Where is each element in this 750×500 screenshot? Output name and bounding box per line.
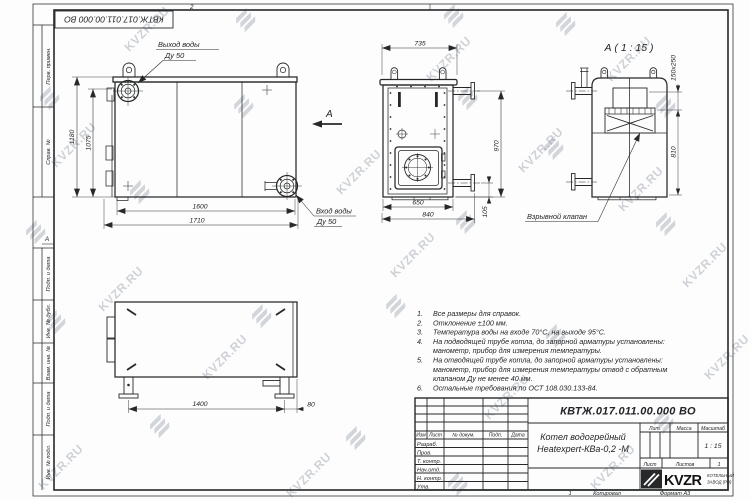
margin-label-podp1: Подп. и дата bbox=[46, 256, 52, 291]
technical-notes: 1. Все размеры для справок. 2. Отклонени… bbox=[416, 309, 667, 392]
top-view-shape bbox=[107, 339, 115, 362]
front-view-shape bbox=[123, 63, 135, 77]
top-view-shape bbox=[280, 377, 289, 394]
dim-150x250: 150x250 bbox=[671, 55, 678, 81]
side-view-shape-shape bbox=[390, 92, 392, 94]
front-view-shape bbox=[123, 85, 272, 191]
dim-1180: 1180 bbox=[69, 129, 76, 144]
front-view-shape bbox=[133, 96, 135, 98]
detail-view-a-shape bbox=[676, 86, 680, 93]
front-view-shape bbox=[277, 63, 289, 77]
dim-1600: 1600 bbox=[192, 204, 207, 211]
note-num: 3. bbox=[417, 328, 423, 337]
explosion-valve-label: Взрывной клапан bbox=[527, 212, 587, 221]
inlet-dn-label: Ду 50 bbox=[316, 217, 337, 226]
view-direction-arrow-shape bbox=[312, 120, 322, 127]
note-line: На подводящей трубе котла, до запорной а… bbox=[433, 337, 665, 346]
kvzr-logo-shape bbox=[641, 470, 662, 489]
margin-label-perv: Перв. примен. bbox=[46, 47, 52, 84]
view-direction-arrow: А bbox=[312, 109, 342, 128]
sheets-label: Листов bbox=[675, 462, 695, 468]
front-view-shape bbox=[72, 77, 115, 197]
doc-number: КВТЖ.017.011.00.000 ВО bbox=[560, 406, 696, 418]
margin-label-invdubl: Инв. № дубл. bbox=[46, 304, 52, 338]
side-view-shape-shape bbox=[390, 164, 392, 166]
lit-label: Лит. bbox=[648, 426, 661, 432]
detail-view-a-shape bbox=[613, 88, 647, 108]
sheets-value: 1 bbox=[717, 462, 720, 468]
side-view-shape-shape bbox=[438, 86, 440, 88]
side-view-shape bbox=[395, 147, 442, 189]
side-view-shape bbox=[435, 92, 438, 107]
side-view: 735 970 650 840 105 bbox=[380, 41, 505, 224]
inlet-water-label: Вход воды bbox=[316, 207, 352, 216]
zone-number-top: 2 bbox=[189, 4, 194, 11]
row-razrab: Разраб. bbox=[417, 442, 437, 448]
side-view-shape-shape bbox=[390, 176, 392, 178]
top-view-shape bbox=[119, 394, 138, 398]
col-doc: № докум. bbox=[452, 433, 474, 439]
note-line: Температура воды на входе 70°С, на выход… bbox=[433, 328, 606, 337]
front-view-shape bbox=[292, 179, 294, 181]
drawing-sheet: KVZR.RUKVZR.RUKVZR.RUKVZR.RUKVZR.RUKVZR.… bbox=[0, 0, 750, 500]
front-view-shape bbox=[133, 84, 135, 86]
note-line: На отводящей трубе котла, до запорной ар… bbox=[433, 356, 663, 365]
side-view-shape-shape bbox=[390, 152, 392, 154]
copied-label: Копировал bbox=[593, 491, 622, 497]
front-view-shape bbox=[280, 191, 282, 193]
note-num: 4. bbox=[417, 337, 423, 346]
margin-label-sprav: Справ. № bbox=[46, 139, 52, 164]
side-view-shape-shape bbox=[444, 188, 446, 190]
detail-view-a-shape bbox=[676, 189, 680, 196]
front-view-shape bbox=[292, 191, 294, 193]
front-view-shape bbox=[296, 195, 314, 216]
front-view-shape bbox=[280, 179, 282, 181]
side-view-shape bbox=[487, 197, 491, 204]
side-view-shape-shape bbox=[417, 155, 419, 157]
kvzr-logo: KVZR КОТЕЛЬНЫЙ ЗАВОД (РЭ) bbox=[641, 470, 735, 490]
top-view-shape bbox=[115, 302, 297, 377]
margin-label-invpodl: Инв. № подл. bbox=[46, 445, 52, 480]
outlet-dn-label: Ду 50 bbox=[164, 51, 185, 60]
row-tkontr: Т. контр. bbox=[417, 459, 441, 465]
sheet-label: Лист bbox=[642, 462, 656, 468]
front-view-shape bbox=[138, 61, 163, 84]
detail-view-a-shape bbox=[652, 70, 655, 73]
detail-view-a-shape bbox=[609, 108, 651, 114]
side-view-shape-shape bbox=[444, 104, 446, 106]
front-view-shape bbox=[113, 77, 297, 82]
row-nkontr: Н. контр. bbox=[417, 476, 442, 482]
side-view-shape bbox=[398, 92, 401, 107]
top-view-shape bbox=[127, 384, 130, 387]
top-stamp: КВТЖ.017.011.00.000 ВО bbox=[55, 11, 173, 28]
note-num: 5. bbox=[417, 356, 423, 365]
mass-label: Масса bbox=[676, 426, 691, 432]
side-view-shape-shape bbox=[444, 164, 446, 166]
front-view-shape bbox=[280, 67, 285, 72]
dim-840: 840 bbox=[422, 212, 434, 219]
note-line: клапаном Ду не менее 40 мм. bbox=[433, 374, 533, 383]
note-num: 2. bbox=[416, 318, 423, 327]
side-view-shape-shape bbox=[410, 86, 412, 88]
side-view-shape-shape bbox=[425, 159, 427, 161]
side-view-shape-shape bbox=[444, 116, 446, 118]
row-prov: Пров. bbox=[417, 450, 432, 456]
dim-1710: 1710 bbox=[189, 218, 204, 225]
copy-number: 1 bbox=[568, 491, 571, 497]
title-block: КВТЖ.017.011.00.000 ВО Котел водогрейный… bbox=[415, 398, 735, 497]
top-view-shape bbox=[278, 407, 284, 411]
dim-1400: 1400 bbox=[192, 401, 207, 408]
product-name-line1: Котел водогрейный bbox=[540, 432, 626, 442]
note-line: манометр, прибор для измерения температу… bbox=[433, 346, 602, 355]
detail-view-a-shape bbox=[601, 68, 608, 78]
side-view-shape-shape bbox=[409, 175, 411, 177]
top-view-shape bbox=[263, 381, 280, 387]
detail-view-a-shape bbox=[650, 68, 657, 78]
detail-view-a-shape bbox=[607, 116, 653, 132]
front-view: 1180 1075 1600 1710 bbox=[69, 40, 356, 229]
dim-810: 810 bbox=[671, 146, 678, 158]
stamp-doc-number: КВТЖ.017.011.00.000 ВО bbox=[64, 14, 164, 24]
side-view-shape-shape bbox=[428, 167, 430, 169]
row-utv: Утв. bbox=[416, 484, 430, 490]
side-view-shape-shape bbox=[405, 167, 407, 169]
top-view-shape bbox=[107, 317, 115, 338]
side-view-shape-shape bbox=[390, 128, 392, 130]
col-podp: Подп. bbox=[489, 433, 503, 439]
top-view-shape bbox=[127, 309, 285, 370]
outlet-water-label: Выход воды bbox=[158, 40, 200, 49]
note-line: Все размеры для справок. bbox=[433, 309, 521, 318]
dim-105: 105 bbox=[482, 206, 489, 218]
dim-1075: 1075 bbox=[86, 135, 93, 150]
side-view-shape bbox=[392, 70, 396, 74]
note-line: Отклонение ±100 мм. bbox=[433, 318, 508, 327]
detail-view-a-shape bbox=[649, 84, 682, 195]
dim-650: 650 bbox=[412, 200, 424, 207]
side-view-shape bbox=[391, 68, 398, 80]
dim-735: 735 bbox=[414, 41, 426, 48]
scale-value: 1 : 15 bbox=[704, 443, 721, 450]
detail-view-a-shape bbox=[603, 70, 606, 73]
col-data: Дата bbox=[510, 433, 525, 439]
left-margin-labels: Перв. примен. Справ. № Подп. и дата Инв.… bbox=[33, 25, 54, 490]
col-list: Лист bbox=[428, 433, 442, 439]
detail-view-a: А ( 1 : 15 ) 150x250 810 bbox=[525, 42, 682, 222]
row-nachotd: Нач.отд. bbox=[417, 467, 441, 473]
product-name-line2: Heatexpert-КВа-0,2 -М bbox=[537, 444, 629, 454]
side-view-shape-shape bbox=[424, 86, 426, 88]
logo-subtitle-1: КОТЕЛЬНЫЙ bbox=[707, 473, 735, 478]
detail-view-title: А ( 1 : 15 ) bbox=[603, 42, 653, 54]
dim-80: 80 bbox=[307, 402, 315, 409]
top-view: 1400 80 bbox=[107, 302, 315, 413]
logo-text: KVZR bbox=[664, 473, 703, 489]
engineering-drawing: 2 А Перв. примен. Справ. № Подп. и дата … bbox=[0, 0, 750, 500]
top-view-shape bbox=[129, 379, 305, 413]
front-view-shape bbox=[272, 172, 302, 200]
dim-970: 970 bbox=[494, 140, 501, 152]
side-view-shape-shape bbox=[409, 159, 411, 161]
side-view-shape-shape bbox=[425, 175, 427, 177]
scale-label: Масштаб bbox=[701, 426, 726, 432]
side-view-shape-shape bbox=[390, 104, 392, 106]
side-view-shape-shape bbox=[417, 178, 419, 180]
side-view-shape-shape bbox=[390, 188, 392, 190]
front-view-shape bbox=[107, 88, 114, 101]
format-label: Формат А3 bbox=[660, 491, 691, 497]
side-view-shape bbox=[439, 68, 446, 80]
margin-label-vzam: Взам. инв. № bbox=[46, 346, 52, 381]
side-view-shape-shape bbox=[390, 116, 392, 118]
front-view-shape bbox=[115, 82, 296, 197]
detail-view-a-shape bbox=[598, 133, 640, 222]
top-view-shape bbox=[275, 394, 294, 398]
front-view-shape bbox=[177, 82, 242, 197]
side-view-shape bbox=[487, 177, 491, 184]
side-view-shape bbox=[380, 80, 457, 86]
side-view-shape-shape bbox=[444, 140, 446, 142]
logo-subtitle-2: ЗАВОД (РЭ) bbox=[707, 480, 732, 485]
note-num: 1. bbox=[417, 309, 423, 318]
side-view-shape bbox=[441, 70, 445, 74]
col-izm: Изм bbox=[416, 433, 426, 439]
front-view-shape bbox=[121, 96, 123, 98]
front-view-shape bbox=[121, 84, 123, 86]
side-view-shape-shape bbox=[444, 128, 446, 130]
detail-view-a-shape bbox=[676, 110, 680, 117]
side-view-shape-shape bbox=[444, 92, 446, 94]
side-view-shape-shape bbox=[396, 86, 398, 88]
top-view-shape bbox=[297, 407, 303, 411]
note-line: Остальные требования по ОСТ 108.030.133-… bbox=[433, 383, 598, 392]
view-arrow-letter: А bbox=[325, 109, 333, 120]
zone-letter-left: А bbox=[44, 236, 49, 243]
side-view-shape-shape bbox=[390, 140, 392, 142]
front-view-shape bbox=[126, 67, 131, 72]
note-num: 6. bbox=[417, 383, 423, 392]
detail-view-a-shape bbox=[580, 68, 589, 88]
margin-label-podp2: Подп. и дата bbox=[46, 391, 52, 426]
note-line: манометр, прибор для измерения температу… bbox=[433, 365, 667, 374]
